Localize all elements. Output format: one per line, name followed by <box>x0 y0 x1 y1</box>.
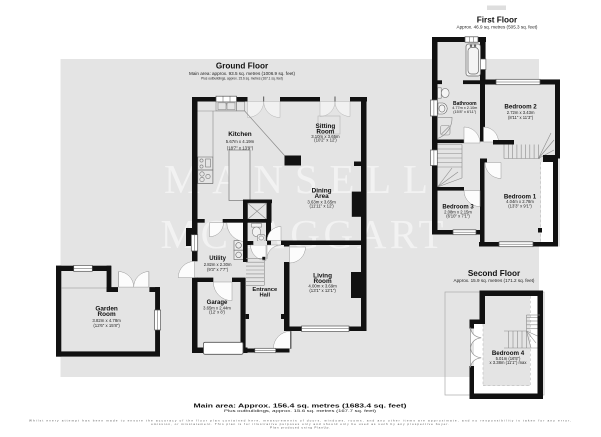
svg-text:(13'3" x 9'1"): (13'3" x 9'1") <box>508 204 532 209</box>
svg-text:(11'11" x 12'): (11'11" x 12') <box>309 204 334 209</box>
svg-text:(15'8" x 6'11"): (15'8" x 6'11") <box>453 110 477 114</box>
svg-text:(18'7" x 13'9"): (18'7" x 13'9") <box>227 146 254 151</box>
svg-text:(9'3" x 7'7"): (9'3" x 7'7") <box>207 267 229 272</box>
svg-text:Plan produced using PlanUp.: Plan produced using PlanUp. <box>270 426 330 430</box>
svg-text:Main area: approx. 93.5 sq. me: Main area: approx. 93.5 sq. metres (1006… <box>189 71 295 76</box>
svg-text:Hall: Hall <box>259 292 270 298</box>
svg-text:(8'11" x 11'3"): (8'11" x 11'3") <box>508 115 534 120</box>
svg-text:Second Floor: Second Floor <box>468 269 521 278</box>
svg-text:5.67m x 4.19m: 5.67m x 4.19m <box>226 139 255 144</box>
svg-text:Approx. 15.9 sq. metres (171.2: Approx. 15.9 sq. metres (171.2 sq. feet) <box>454 278 535 283</box>
svg-text:Plus outbuildings, approx. 15.: Plus outbuildings, approx. 15.6 sq. metr… <box>201 77 283 81</box>
svg-text:Plus outbuildings, approx. 15.: Plus outbuildings, approx. 15.6 sq. metr… <box>224 408 377 413</box>
svg-text:(12'6" x 15'8"): (12'6" x 15'8") <box>93 323 120 328</box>
svg-text:(13'1" x 12'1"): (13'1" x 12'1") <box>309 288 336 293</box>
svg-text:x 3.38m (11'1") max: x 3.38m (11'1") max <box>490 360 528 365</box>
svg-text:(12' x 8'): (12' x 8') <box>209 310 225 315</box>
svg-text:First Floor: First Floor <box>477 16 518 25</box>
svg-text:Kitchen: Kitchen <box>228 131 252 138</box>
svg-text:Approx. 46.9 sq. metres (505.3: Approx. 46.9 sq. metres (505.3 sq. feet) <box>457 24 538 29</box>
svg-text:(10'2" x 12'): (10'2" x 12') <box>314 138 337 143</box>
svg-text:(6'10" x 7'1"): (6'10" x 7'1") <box>446 214 470 219</box>
svg-text:Ground Floor: Ground Floor <box>216 62 269 71</box>
